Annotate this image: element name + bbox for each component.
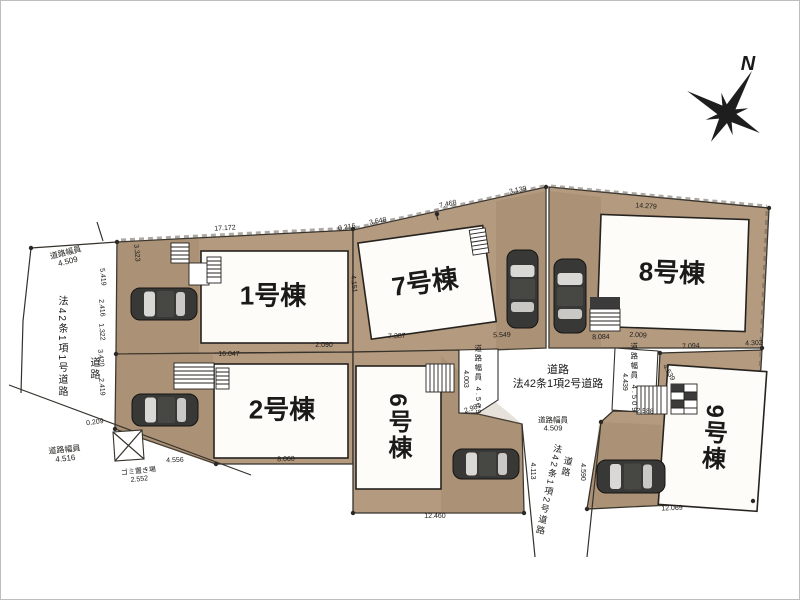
site-plan-drawing	[1, 1, 800, 600]
car-icon	[453, 449, 519, 479]
stairs-icon	[469, 228, 489, 255]
car-icon	[597, 460, 665, 493]
left-road-west-edge	[21, 248, 31, 393]
stairs-icon	[426, 364, 454, 392]
site-plan: 1号棟2号棟7号棟8号棟6号棟9号棟道路幅員 4.509法42条1項1号道路道路…	[0, 0, 800, 600]
car-icon	[554, 259, 586, 333]
car-icon	[507, 250, 538, 328]
compass-rose-icon	[671, 48, 785, 161]
car-icon	[132, 394, 198, 426]
garbage-box-icon	[113, 430, 144, 461]
left-road-top-edge	[31, 242, 117, 248]
stairs-icon	[637, 384, 697, 414]
stairs-icon	[590, 297, 620, 331]
north-spur-line	[97, 222, 103, 241]
car-icon	[131, 288, 197, 320]
road-pentagon	[459, 349, 498, 413]
building-2	[214, 364, 348, 458]
building-1	[201, 251, 348, 343]
